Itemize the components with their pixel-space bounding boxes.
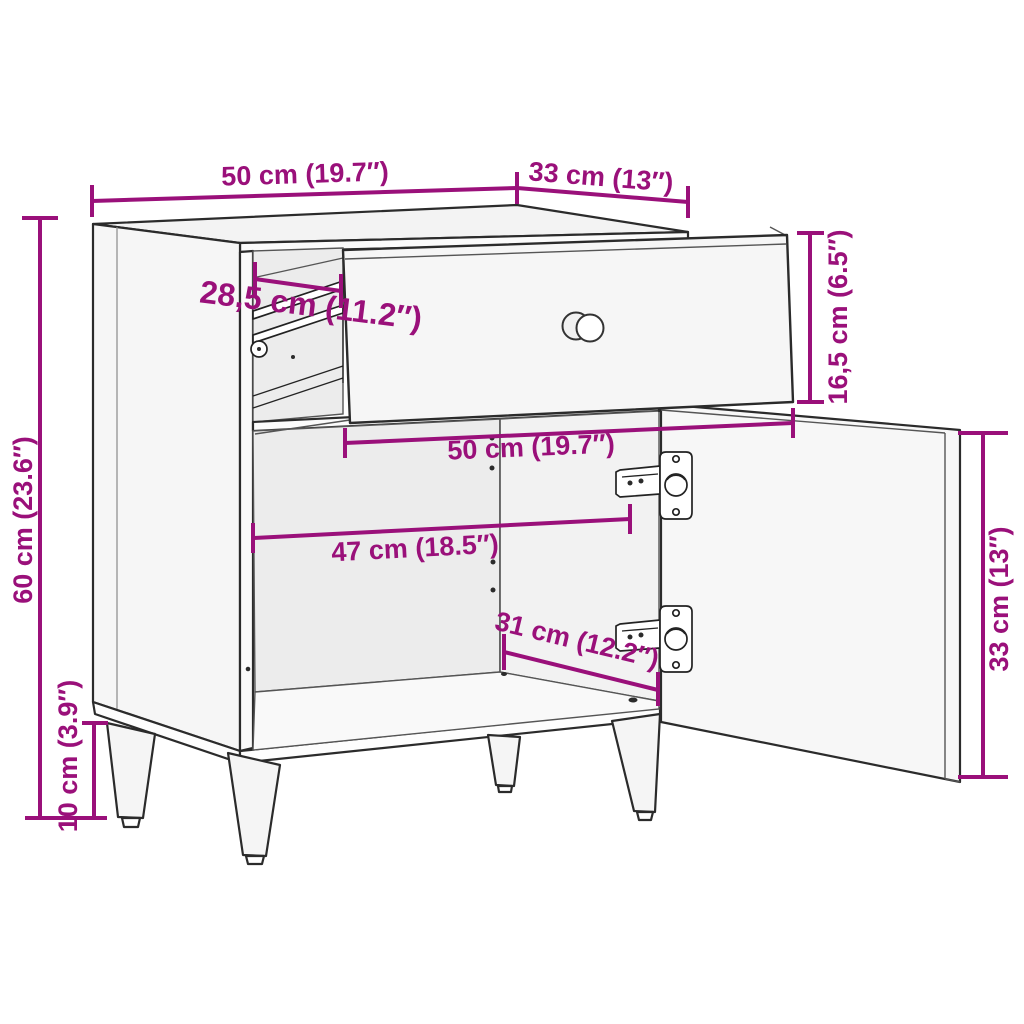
shelf-pin-hole: [491, 560, 496, 565]
shelf-pin-hole: [490, 466, 495, 471]
hinge-screw: [673, 662, 679, 668]
hinge-arm: [616, 466, 660, 497]
hinge-screw: [673, 509, 679, 515]
dimension-label: 33 cm (13″): [984, 526, 1014, 671]
hinge-cup: [665, 628, 687, 650]
hinge-screw: [673, 456, 679, 462]
leg-back-right: [488, 735, 520, 786]
dimension-label: 50 cm (19.7″): [221, 156, 389, 191]
floor-screw: [629, 698, 638, 703]
cabinet-door-open: [616, 404, 960, 782]
slide-screw: [291, 355, 295, 359]
door-panel: [661, 404, 960, 782]
diagram-canvas: 50 cm (19.7″) 33 cm (13″) 28,5 cm (11.2″…: [0, 0, 1024, 1024]
leg-foot: [122, 818, 140, 827]
dimension-label: 16,5 cm (6.5″): [823, 229, 853, 404]
front-left-stile: [240, 251, 253, 751]
dimension-door-height: 33 cm (13″): [958, 433, 1014, 777]
furniture-dimension-diagram: 50 cm (19.7″) 33 cm (13″) 28,5 cm (11.2″…: [0, 0, 1024, 1024]
stile-screw: [246, 667, 251, 672]
shelf-pin-hole: [491, 588, 496, 593]
hinge-screw: [639, 633, 644, 638]
hinge-screw: [628, 481, 633, 486]
leg-foot: [498, 786, 512, 792]
leg-front-right: [612, 714, 660, 812]
dimension-drawer-height: 16,5 cm (6.5″): [797, 229, 853, 404]
leg-back-left: [107, 723, 155, 818]
floor-screw: [501, 672, 507, 676]
dimension-label: 60 cm (23.6″): [8, 436, 38, 604]
slide-roller-axle: [257, 347, 261, 351]
drawer-knob: [577, 315, 604, 342]
leg-foot: [637, 812, 653, 820]
hinge-screw: [639, 479, 644, 484]
hinge-screw: [673, 610, 679, 616]
leg-front-left: [228, 753, 280, 856]
leg-foot: [246, 856, 264, 864]
dimension-label: 10 cm (3.9″): [53, 680, 83, 833]
hinge-cup: [665, 474, 687, 496]
